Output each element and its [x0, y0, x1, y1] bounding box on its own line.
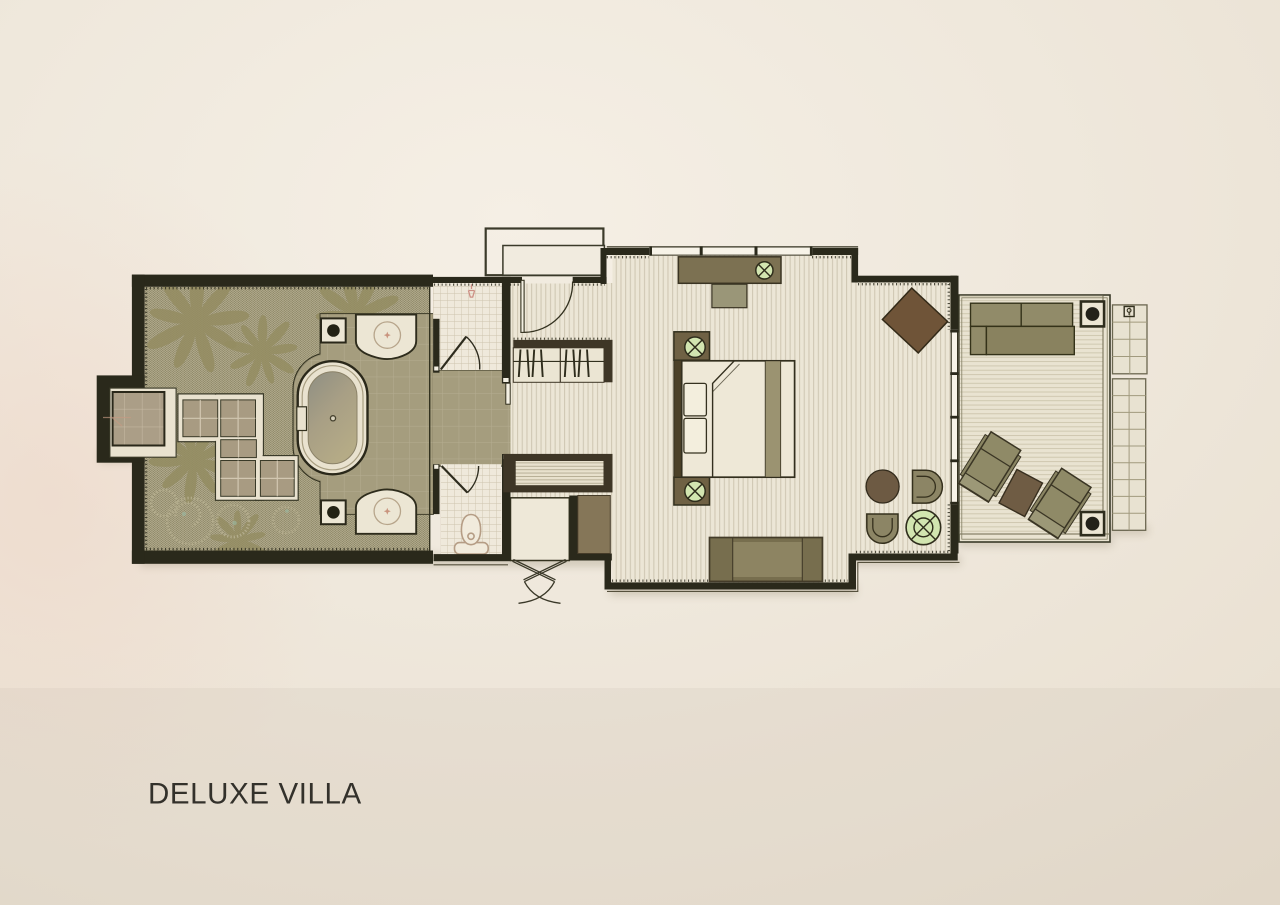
svg-text:DELUXE VILLA: DELUXE VILLA	[148, 778, 362, 811]
